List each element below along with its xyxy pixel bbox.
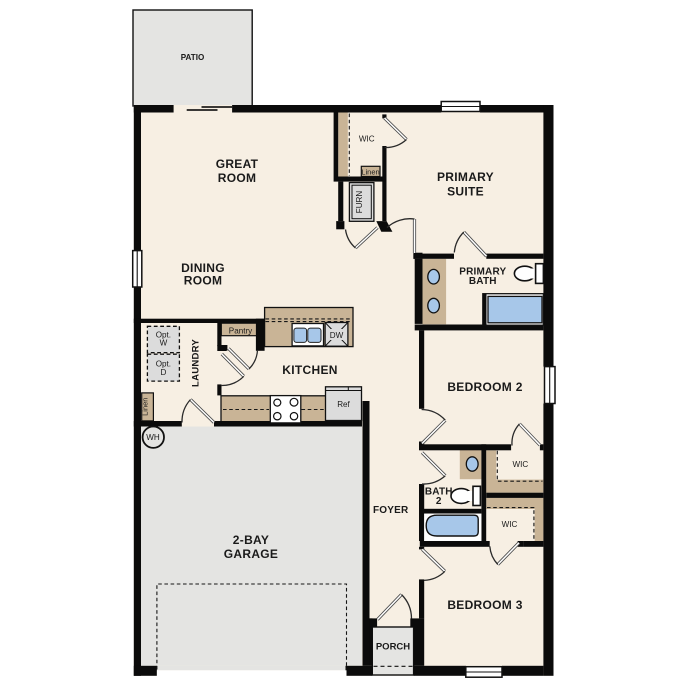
svg-text:W: W [160, 339, 168, 348]
svg-text:2: 2 [436, 496, 442, 507]
svg-text:WIC: WIC [359, 135, 375, 144]
svg-text:Ref: Ref [337, 400, 350, 409]
svg-text:DW: DW [330, 331, 344, 340]
svg-text:LAUNDRY: LAUNDRY [191, 339, 202, 387]
svg-text:ROOM: ROOM [184, 274, 223, 288]
svg-text:WH: WH [146, 433, 160, 442]
svg-text:FURN: FURN [355, 191, 364, 214]
svg-text:SUITE: SUITE [447, 185, 484, 199]
svg-text:FOYER: FOYER [373, 505, 409, 516]
svg-text:BEDROOM 3: BEDROOM 3 [447, 598, 522, 612]
svg-text:ROOM: ROOM [218, 171, 257, 185]
svg-text:2-BAY: 2-BAY [233, 533, 269, 547]
svg-text:BEDROOM 2: BEDROOM 2 [447, 380, 522, 394]
svg-text:PORCH: PORCH [376, 642, 410, 653]
svg-text:WIC: WIC [513, 460, 529, 469]
svg-text:PRIMARY: PRIMARY [437, 170, 494, 184]
svg-text:GREAT: GREAT [216, 157, 259, 171]
svg-text:WIC: WIC [502, 520, 518, 529]
svg-text:Linen: Linen [361, 168, 379, 177]
svg-text:Linen: Linen [141, 398, 150, 416]
svg-text:GARAGE: GARAGE [224, 547, 278, 561]
svg-text:Pantry: Pantry [229, 326, 253, 335]
svg-text:PATIO: PATIO [181, 53, 205, 62]
svg-text:D: D [160, 368, 166, 377]
svg-text:KITCHEN: KITCHEN [282, 363, 337, 377]
svg-text:BATH: BATH [469, 276, 497, 287]
